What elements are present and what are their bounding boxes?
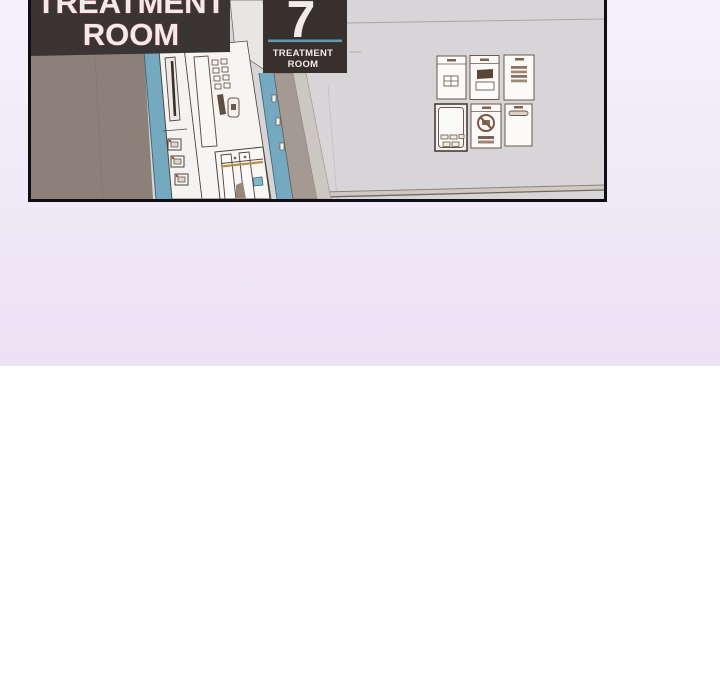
poster-notice-picture [470,56,499,100]
keypad-teal-icon [253,177,263,186]
poster-label [505,104,532,146]
room-7-line1: TREATMENT [273,48,334,59]
reader-button-icon [228,98,239,117]
lower-door-diagram [215,147,270,199]
label-capsule-icon [509,111,528,116]
poster-intercom [435,104,467,151]
room-7-sign: 7 TREATMENT ROOM [263,0,361,73]
comic-panel: TREATMENT ROOM 7 TREATMENT ROOM [28,0,607,202]
treatment-room-sign-large-line2: ROOM [83,17,179,52]
poster-no-smoking [471,104,501,148]
page: TREATMENT ROOM 7 TREATMENT ROOM [0,0,720,700]
room-7-divider [268,40,342,43]
poster-notice-grid [437,56,466,99]
grid-table-icon [444,76,458,86]
treatment-room-sign-large: TREATMENT ROOM [31,0,230,56]
scene-svg: TREATMENT ROOM 7 TREATMENT ROOM [31,0,604,199]
poster-notice-text [504,55,534,100]
room-7-line2: ROOM [288,59,319,70]
